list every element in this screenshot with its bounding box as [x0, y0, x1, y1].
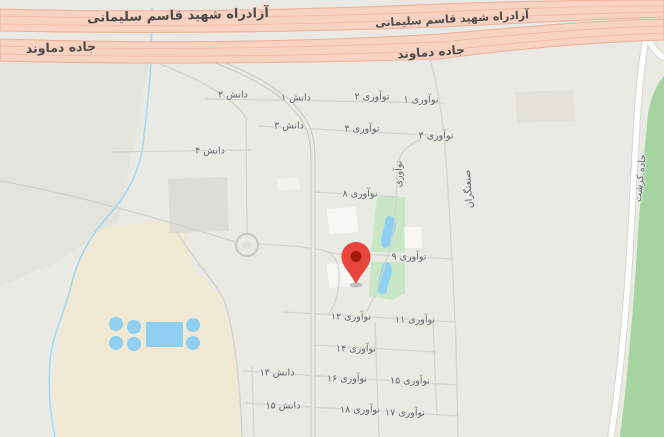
- location-pin-icon[interactable]: [338, 238, 374, 288]
- pin-inner-dot: [351, 251, 362, 262]
- pool-circle: [186, 318, 200, 332]
- pool-circle: [186, 336, 200, 350]
- pin-body: [342, 242, 371, 284]
- map-base-layer: [0, 0, 664, 437]
- pool-rect: [146, 322, 183, 347]
- pool-circle: [127, 337, 141, 351]
- building: [277, 177, 300, 191]
- building: [515, 90, 575, 123]
- building: [404, 227, 422, 248]
- map-canvas[interactable]: آزادراه شهید قاسم سلیمانیآزادراه شهید قا…: [0, 0, 664, 437]
- pool-circle: [109, 336, 123, 350]
- pool-circle: [127, 320, 141, 334]
- pool-circle: [109, 317, 123, 331]
- roundabout: [236, 234, 258, 256]
- building: [327, 207, 358, 234]
